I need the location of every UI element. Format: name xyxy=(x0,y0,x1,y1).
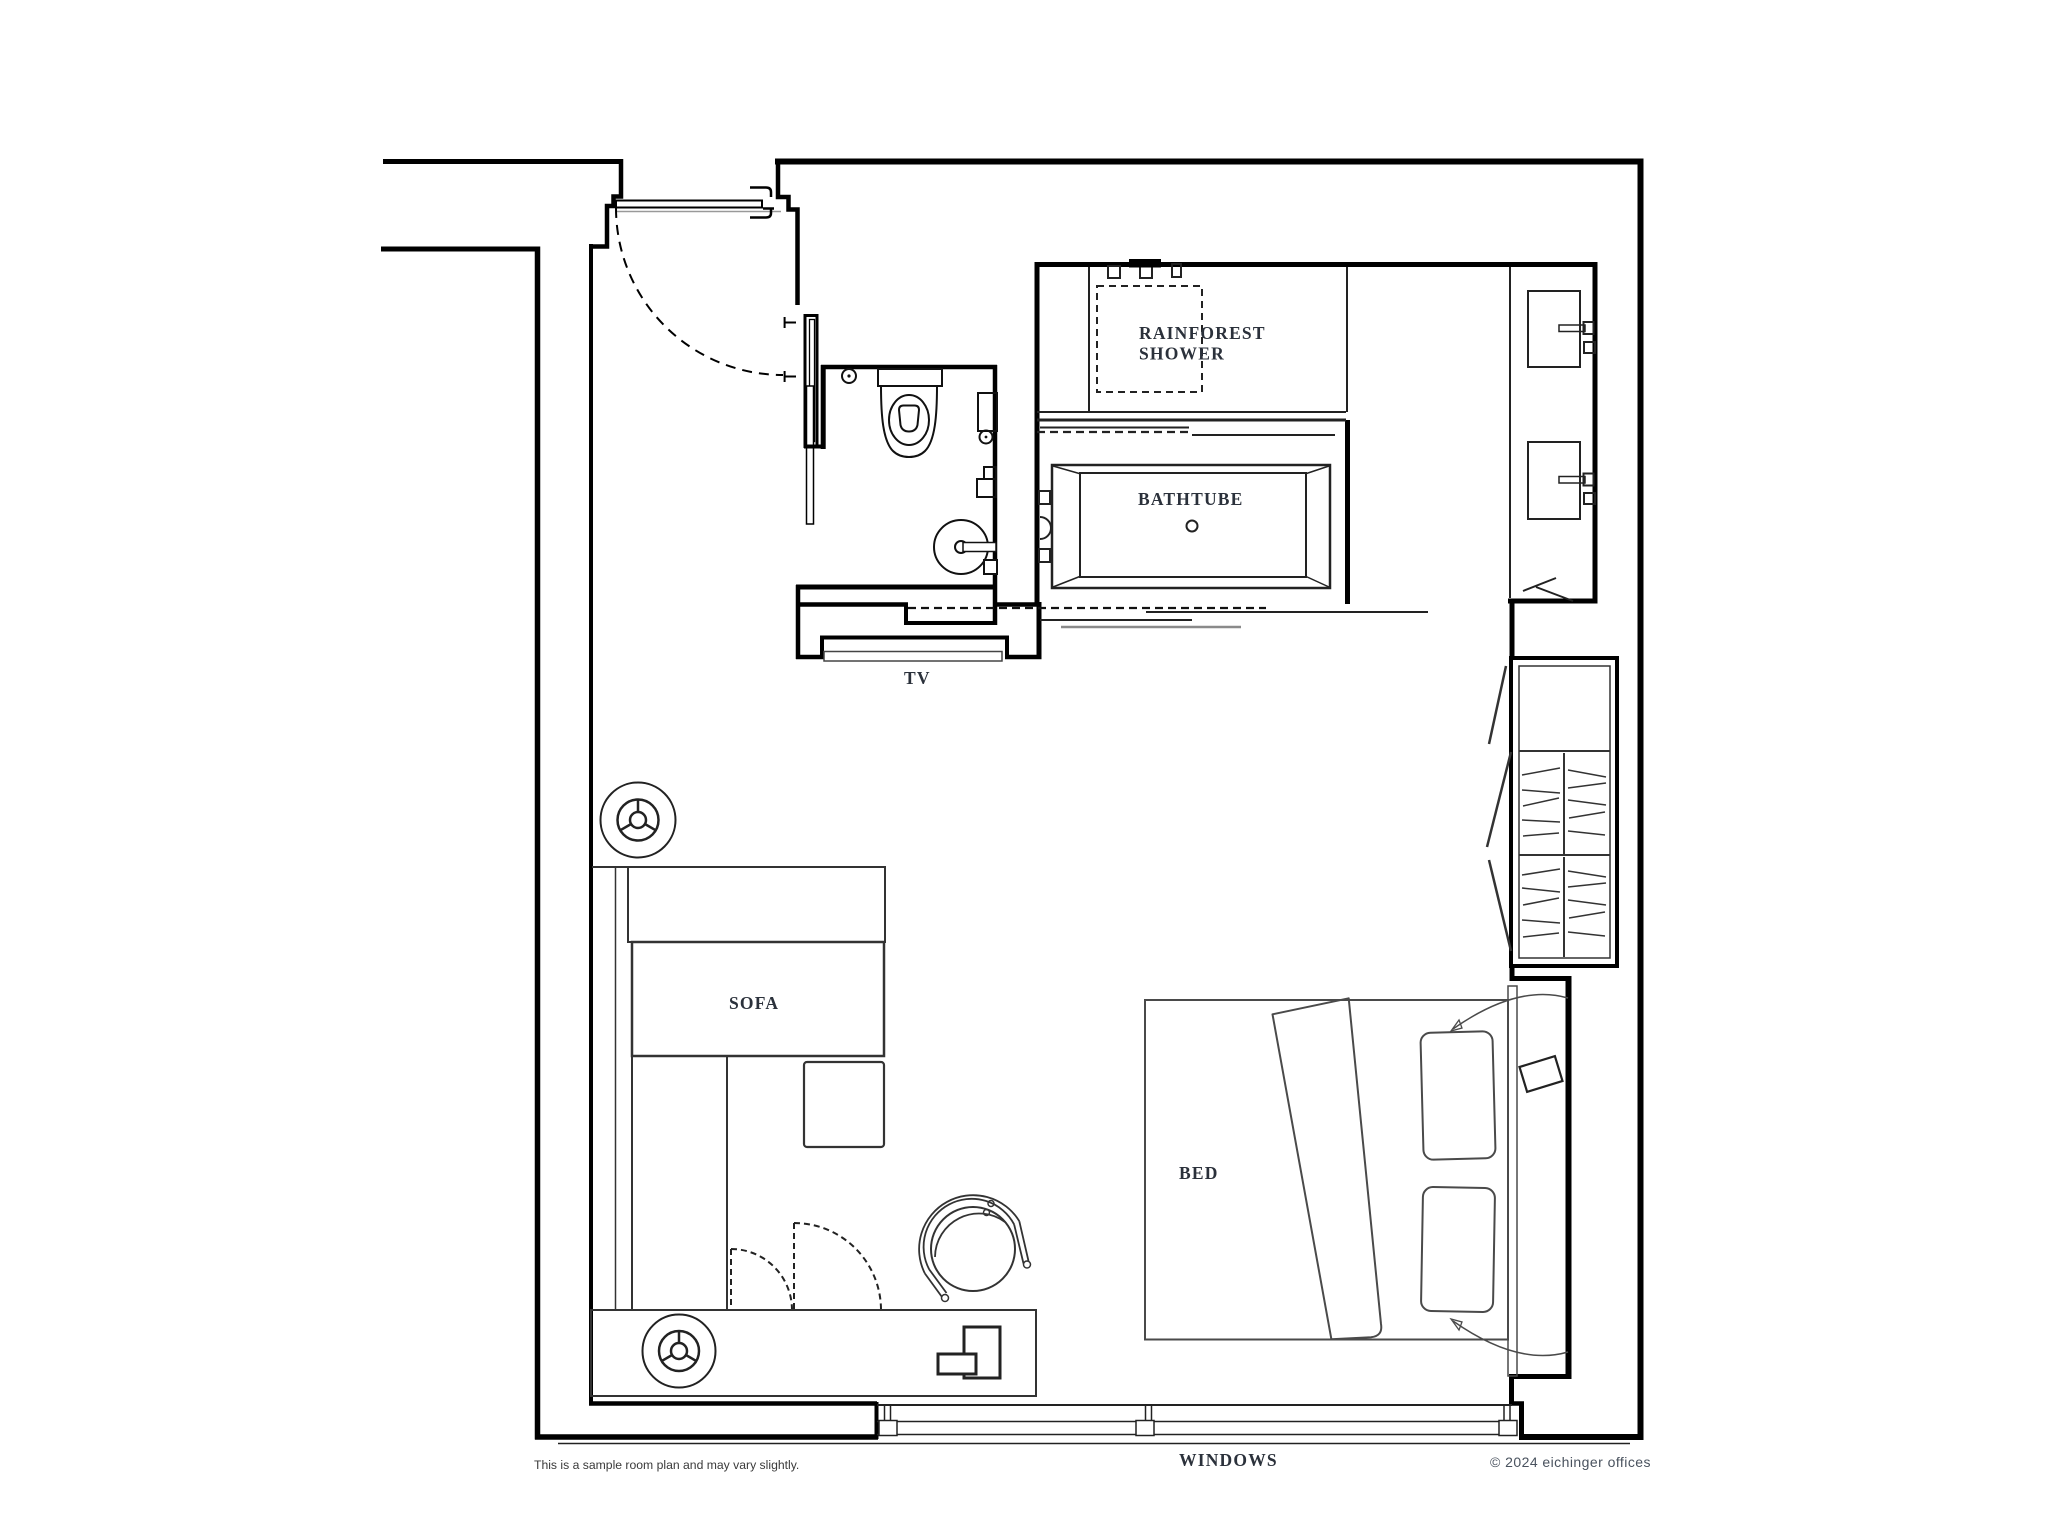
svg-text:This is a sample room plan and: This is a sample room plan and may vary … xyxy=(534,1458,799,1472)
svg-text:SHOWER: SHOWER xyxy=(1139,344,1225,364)
svg-text:© 2024 eichinger offices: © 2024 eichinger offices xyxy=(1490,1454,1651,1470)
svg-text:SOFA: SOFA xyxy=(729,993,779,1013)
svg-text:BATHTUBE: BATHTUBE xyxy=(1138,489,1244,509)
svg-text:BED: BED xyxy=(1179,1163,1219,1183)
svg-text:WINDOWS: WINDOWS xyxy=(1179,1450,1278,1470)
svg-text:TV: TV xyxy=(904,668,931,688)
svg-text:RAINFOREST: RAINFOREST xyxy=(1139,323,1266,343)
